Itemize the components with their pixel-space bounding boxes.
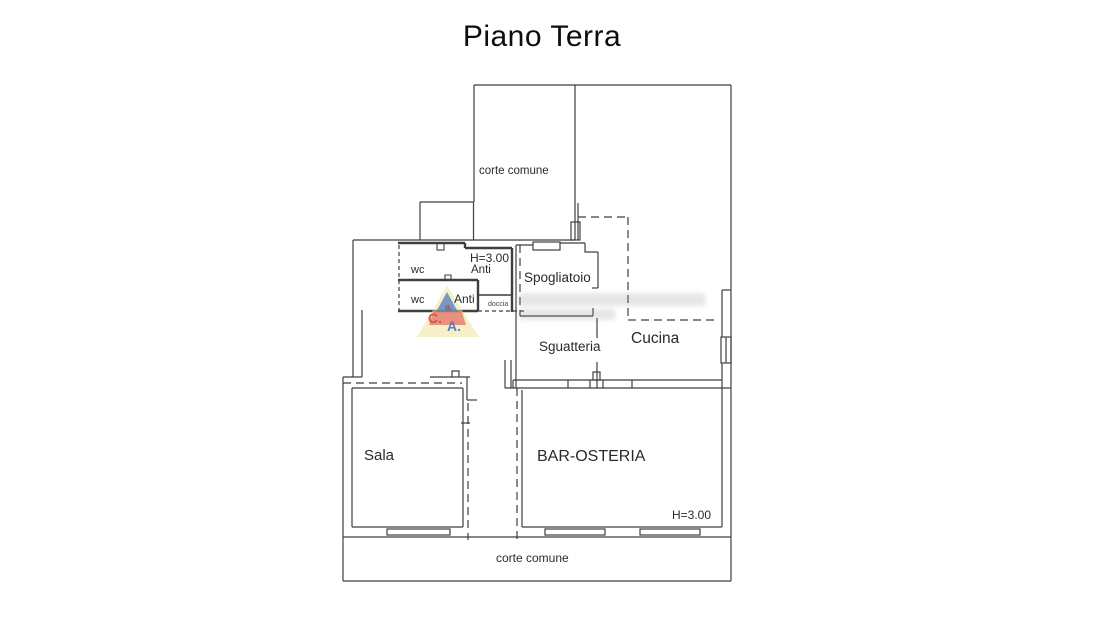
room-label-wc-upper: wc bbox=[411, 264, 424, 276]
room-label-sguatteria: Sguatteria bbox=[539, 339, 601, 354]
watermark-letter-c: C. bbox=[428, 310, 442, 326]
room-label-cucina: Cucina bbox=[631, 330, 679, 348]
room-label-wc-lower: wc bbox=[411, 294, 424, 306]
page-title: Piano Terra bbox=[0, 20, 1084, 54]
height-annotation-lower: H=3.00 bbox=[672, 508, 711, 522]
watermark-letter-a: A. bbox=[447, 318, 461, 334]
room-label-bar-osteria: BAR-OSTERIA bbox=[537, 448, 645, 466]
room-label-sala: Sala bbox=[364, 447, 394, 464]
floor-plan-page: Piano Terra corte comune H=3.00 wc Anti … bbox=[0, 0, 1112, 628]
room-label-anti-lower: Anti bbox=[454, 292, 475, 306]
room-label-corte-comune-bottom: corte comune bbox=[496, 551, 569, 565]
walls-dashed bbox=[343, 217, 718, 540]
height-annotation-upper: H=3.00 bbox=[470, 251, 509, 265]
room-label-spogliatoio: Spogliatoio bbox=[524, 270, 591, 285]
room-label-corte-comune-top: corte comune bbox=[479, 165, 549, 177]
watermark-letter-small: a. bbox=[445, 302, 453, 312]
watermark-blur-text-line2 bbox=[519, 309, 615, 320]
door-marks bbox=[437, 243, 451, 280]
room-label-doccia: doccia bbox=[488, 301, 508, 308]
watermark-blur-text-line1 bbox=[519, 293, 705, 306]
room-label-anti-upper: Anti bbox=[471, 264, 491, 276]
